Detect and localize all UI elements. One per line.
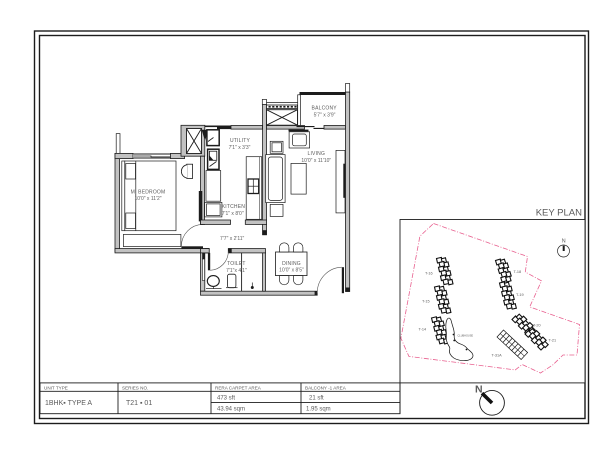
svg-text:T-20: T-20 [533,324,541,328]
svg-text:10'0" x 11'10": 10'0" x 11'10" [301,158,331,164]
svg-text:7'1" x 3'3": 7'1" x 3'3" [229,145,251,151]
svg-text:N: N [562,239,566,245]
svg-text:10'0" x 8'5": 10'0" x 8'5" [279,268,304,274]
svg-text:T-14: T-14 [419,328,427,332]
svg-text:T-18: T-18 [514,270,522,274]
svg-text:T-15: T-15 [422,300,430,304]
svg-text:M. BEDROOM: M. BEDROOM [131,189,166,195]
svg-text:N: N [475,384,483,396]
svg-text:T-21: T-21 [549,339,557,343]
svg-text:KITCHEN: KITCHEN [222,204,246,210]
svg-text:T21 ▪ 01: T21 ▪ 01 [126,400,152,407]
svg-text:473 sft: 473 sft [217,396,235,402]
svg-text:DINING: DINING [282,261,301,267]
svg-text:1.95 sqm: 1.95 sqm [306,407,331,413]
svg-text:10'0" x 11'2": 10'0" x 11'2" [134,196,161,202]
svg-text:7'1" x 8'0": 7'1" x 8'0" [222,211,244,217]
svg-text:21 sft: 21 sft [309,396,324,402]
svg-text:7'1"x 4'1": 7'1"x 4'1" [226,268,247,274]
svg-text:BALCONY -1 AREA: BALCONY -1 AREA [305,385,347,390]
svg-text:TOILET: TOILET [227,261,246,267]
svg-text:SERIES NO.: SERIES NO. [122,385,148,390]
svg-text:T-19: T-19 [516,293,524,297]
svg-text:T-31A: T-31A [492,354,503,358]
svg-text:RERA CARPET AREA: RERA CARPET AREA [215,385,262,390]
svg-text:BALCONY: BALCONY [312,105,338,111]
svg-text:UNIT TYPE: UNIT TYPE [44,385,68,390]
svg-text:7'7" x 2'11": 7'7" x 2'11" [220,236,244,242]
svg-text:43.94 sqm: 43.94 sqm [217,407,245,413]
svg-text:UTILITY: UTILITY [230,138,250,144]
svg-text:5'7" x 3'9": 5'7" x 3'9" [314,112,336,118]
svg-text:T-16: T-16 [425,272,433,276]
svg-text:KEY PLAN: KEY PLAN [536,208,582,219]
svg-text:LIVING: LIVING [307,151,325,157]
svg-text:1BHK▪ TYPE A: 1BHK▪ TYPE A [45,400,92,407]
svg-text:CLUBHOUSE: CLUBHOUSE [458,334,474,337]
